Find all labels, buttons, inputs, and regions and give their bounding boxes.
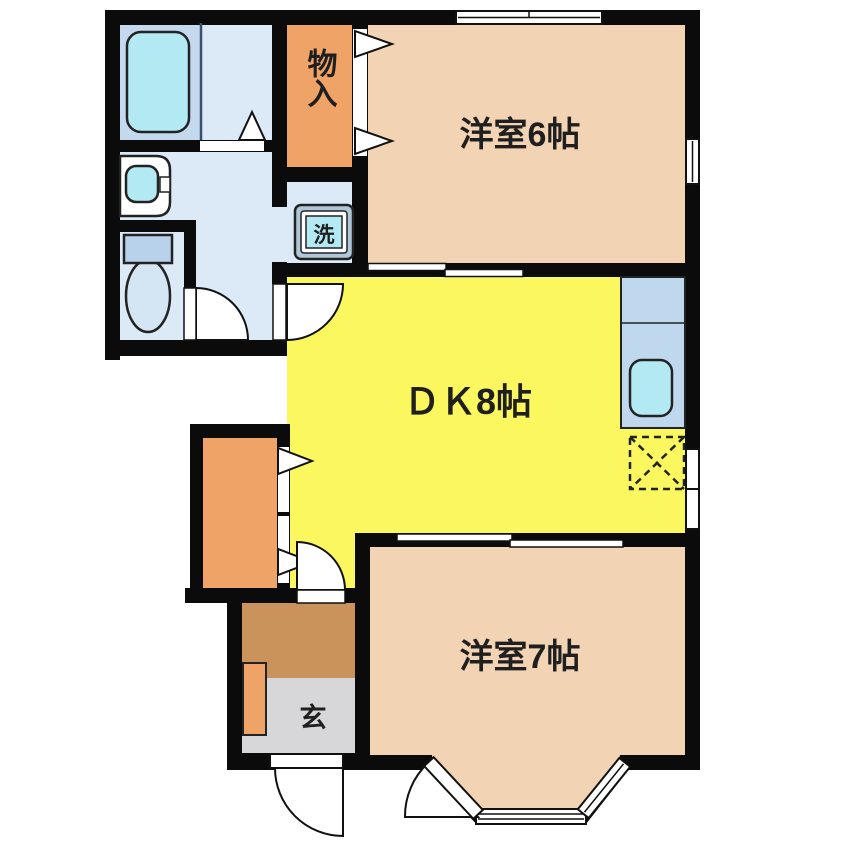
toilet-bowl bbox=[126, 260, 170, 332]
kitchen-sink bbox=[630, 360, 672, 416]
hall-gap-floor bbox=[272, 207, 287, 263]
sliding-door-panel bbox=[510, 540, 623, 547]
wall bbox=[620, 755, 700, 770]
wall bbox=[105, 10, 120, 360]
dk-label: ＤＫ8帖 bbox=[404, 381, 532, 422]
storage-label: 物入 bbox=[303, 48, 338, 108]
wall bbox=[272, 23, 287, 207]
floor-plan-canvas: 洋室6帖 ＤＫ8帖 洋室7帖 物入 洗 玄 bbox=[0, 0, 846, 846]
bathtub bbox=[127, 32, 189, 132]
wall bbox=[272, 262, 287, 284]
bay-window-pane bbox=[476, 809, 586, 824]
shoe-cabinet bbox=[243, 663, 266, 735]
wall bbox=[118, 220, 196, 232]
bathroom-door-opening bbox=[200, 141, 264, 151]
wall bbox=[685, 10, 700, 770]
western-room7-floor bbox=[368, 545, 685, 813]
wall bbox=[355, 533, 370, 770]
wall bbox=[184, 232, 196, 288]
vanity-faucet bbox=[160, 177, 170, 192]
toilet-tank bbox=[124, 235, 172, 263]
toilet-door-panel bbox=[184, 288, 196, 340]
vanity-basin bbox=[126, 166, 158, 202]
wall bbox=[272, 340, 287, 356]
lower-closet-floor bbox=[203, 438, 277, 588]
wall bbox=[190, 424, 203, 590]
entrance-label: 玄 bbox=[300, 702, 327, 733]
sliding-door-panel bbox=[397, 534, 512, 541]
entrance-door-swing bbox=[275, 768, 343, 836]
wall bbox=[227, 602, 242, 770]
floor-plan: 洋室6帖 ＤＫ8帖 洋室7帖 物入 洗 玄 bbox=[0, 0, 846, 846]
laundry-label: 洗 bbox=[314, 224, 335, 247]
sliding-door-panel bbox=[445, 270, 523, 277]
dk-door-panel bbox=[273, 284, 286, 340]
closet-door-divider bbox=[277, 512, 290, 516]
entrance-door-panel bbox=[270, 754, 343, 768]
hall-door-panel bbox=[297, 590, 345, 603]
room7-label: 洋室7帖 bbox=[460, 637, 581, 676]
wall bbox=[185, 588, 297, 603]
wall bbox=[190, 424, 287, 438]
wall bbox=[105, 10, 700, 25]
washroom-upper-floor bbox=[202, 23, 274, 144]
room6-label: 洋室6帖 bbox=[460, 115, 581, 154]
sliding-door-panel bbox=[368, 264, 446, 271]
